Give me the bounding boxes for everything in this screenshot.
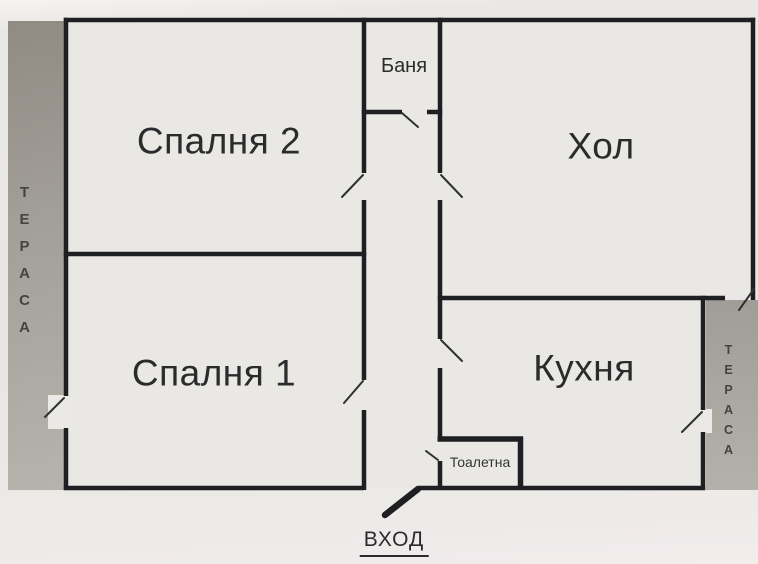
- floor-plan-drawing: [0, 0, 758, 564]
- room-label-bathroom: Баня: [381, 56, 427, 76]
- door-entrance: [385, 489, 418, 515]
- entrance-label: ВХОД: [360, 529, 429, 557]
- room-label-toilet: Тоалетна: [450, 455, 510, 469]
- floor-plan-photo: Спалня 2 Хол Спалня 1 Кухня Баня Тоалетн…: [0, 0, 758, 564]
- terrace-right-label: ТЕРАСА: [722, 343, 735, 463]
- room-label-bedroom1: Спалня 1: [132, 355, 296, 392]
- room-label-hall: Хол: [567, 128, 634, 165]
- room-label-kitchen: Кухня: [533, 350, 635, 387]
- terrace-left-label: ТЕРАСА: [17, 184, 32, 346]
- room-label-bedroom2: Спалня 2: [137, 123, 301, 160]
